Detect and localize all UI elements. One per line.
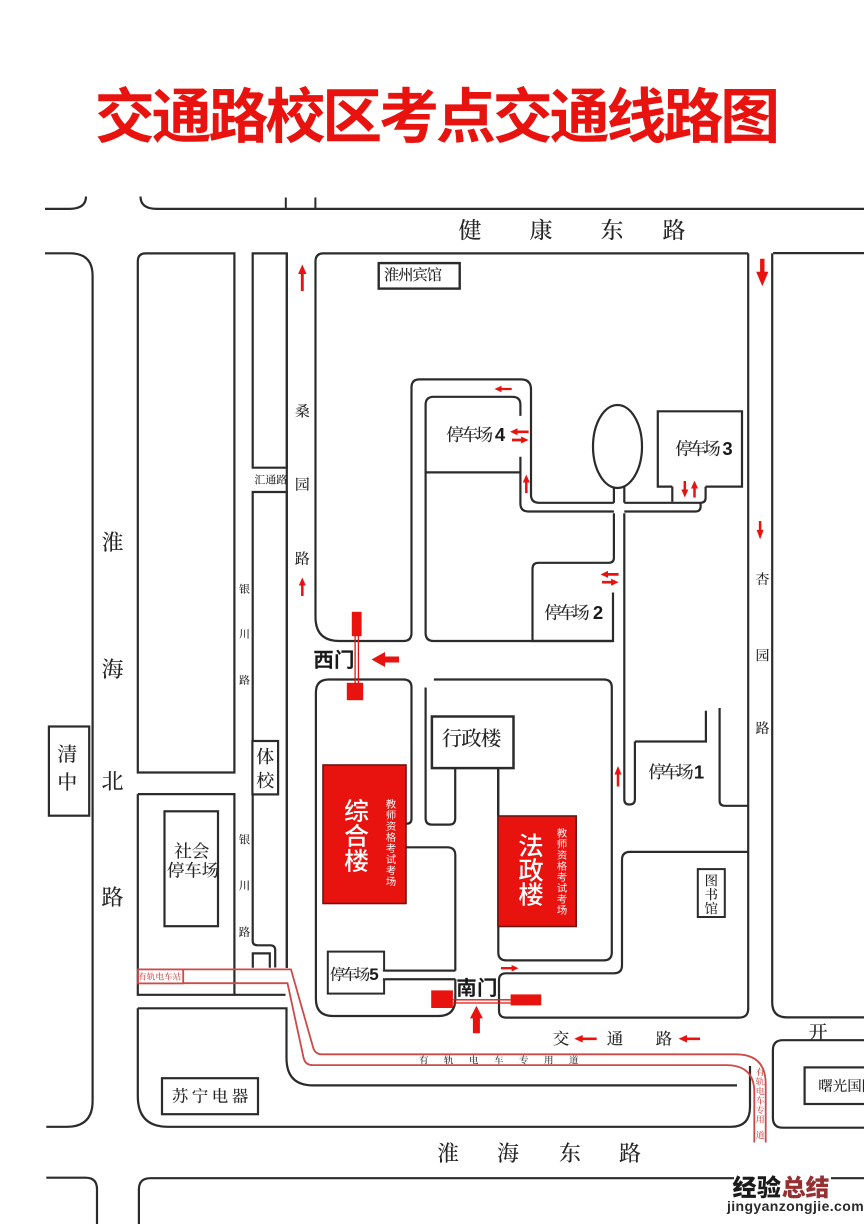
svg-text:jingyanzongjie.com: jingyanzongjie.com (726, 1198, 864, 1214)
svg-text:1: 1 (694, 761, 704, 782)
svg-text:2: 2 (593, 602, 603, 623)
svg-text:5: 5 (369, 965, 378, 984)
svg-text:3: 3 (722, 438, 732, 459)
svg-text:4: 4 (495, 424, 506, 445)
